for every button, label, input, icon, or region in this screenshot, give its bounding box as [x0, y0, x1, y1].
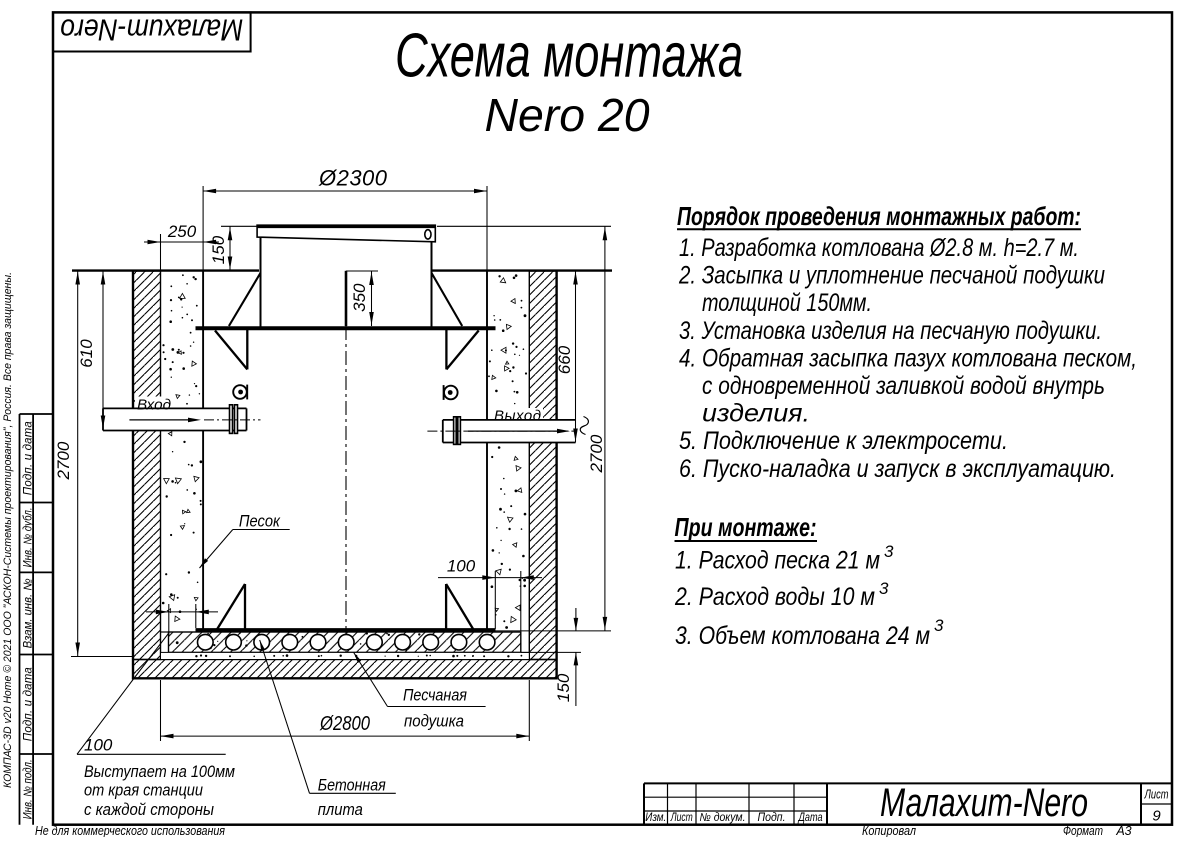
svg-text:1. Расход песка 21 м: 1. Расход песка 21 м [675, 546, 880, 574]
svg-text:Лист: Лист [1144, 788, 1169, 802]
svg-text:Изм.: Изм. [645, 812, 666, 824]
svg-text:Песок: Песок [239, 512, 281, 531]
svg-text:2700: 2700 [587, 434, 606, 473]
svg-text:подушка: подушка [404, 712, 464, 731]
svg-text:4. Обратная засыпка пазух котл: 4. Обратная засыпка пазух котлована песк… [679, 344, 1137, 372]
svg-text:350: 350 [350, 283, 369, 312]
svg-text:с одновременной заливкой водой: с одновременной заливкой водой внутрь [702, 372, 1105, 400]
svg-text:с каждой стороны: с каждой стороны [84, 800, 214, 819]
svg-text:Ø2800: Ø2800 [319, 713, 370, 735]
svg-text:Выход: Выход [494, 407, 541, 424]
svg-text:Малахит-Nero: Малахит-Nero [880, 781, 1088, 825]
svg-text:150: 150 [554, 673, 573, 702]
svg-text:толщиной 150мм.: толщиной 150мм. [702, 289, 872, 317]
svg-text:от края станции: от края станции [84, 780, 203, 799]
svg-text:№ докум.: № докум. [700, 812, 746, 824]
svg-text:Бетонная: Бетонная [318, 775, 386, 794]
svg-text:Дата: Дата [797, 812, 823, 824]
svg-text:Подп.: Подп. [758, 812, 786, 824]
svg-text:Схема монтажа: Схема монтажа [395, 22, 743, 91]
svg-text:100: 100 [447, 557, 476, 576]
svg-text:Взам. инв. №: Взам. инв. № [23, 578, 35, 649]
svg-text:6. Пуско-наладка и запуск в эк: 6. Пуско-наладка и запуск в эксплуатацию… [679, 455, 1116, 483]
svg-text:Подп. и дата: Подп. и дата [23, 421, 35, 495]
svg-text:660: 660 [555, 345, 574, 374]
svg-text:2700: 2700 [54, 441, 73, 480]
svg-text:5. Подключение к электросети.: 5. Подключение к электросети. [679, 427, 1008, 455]
svg-text:КОМПАС-3D v20 Home © 2021 ООО: КОМПАС-3D v20 Home © 2021 ООО "АСКОН-Сис… [2, 272, 14, 788]
svg-text:Малахит-Nero: Малахит-Nero [60, 13, 243, 48]
svg-text:При монтаже:: При монтаже: [675, 512, 817, 542]
svg-text:1. Разработка котлована Ø2.8 м: 1. Разработка котлована Ø2.8 м. h=2.7 м. [679, 234, 1079, 262]
svg-text:3: 3 [884, 542, 894, 561]
svg-text:610: 610 [77, 339, 96, 368]
svg-text:Не для коммерческого использов: Не для коммерческого использования [35, 824, 225, 837]
svg-text:3. Установка изделия на песчан: 3. Установка изделия на песчаную подушки… [679, 317, 1102, 345]
svg-text:Формат: Формат [1063, 824, 1103, 837]
svg-text:Копировал: Копировал [862, 824, 916, 837]
svg-text:3: 3 [934, 616, 944, 635]
svg-text:изделия.: изделия. [702, 400, 810, 428]
svg-text:250: 250 [167, 222, 197, 241]
svg-text:Выступает на 100мм: Выступает на 100мм [84, 762, 235, 781]
svg-text:2. Расход воды 10 м: 2. Расход воды 10 м [674, 583, 875, 611]
svg-text:3. Объем котлована 24 м: 3. Объем котлована 24 м [675, 622, 930, 650]
svg-text:Песчаная: Песчаная [403, 686, 467, 705]
svg-text:А3: А3 [1115, 824, 1131, 837]
svg-text:150: 150 [209, 235, 228, 264]
svg-text:Инв. № подл.: Инв. № подл. [23, 759, 35, 819]
svg-text:Nero 20: Nero 20 [485, 89, 650, 141]
svg-text:плита: плита [318, 800, 363, 819]
svg-text:Ø2300: Ø2300 [318, 166, 388, 191]
svg-text:Порядок проведения монтажных р: Порядок проведения монтажных работ: [677, 201, 1081, 231]
svg-text:2. Засыпка и уплотнение песчан: 2. Засыпка и уплотнение песчаной подушки [678, 262, 1105, 290]
svg-text:9: 9 [1152, 808, 1161, 825]
svg-text:3: 3 [879, 579, 889, 598]
svg-text:Инв. № дубл.: Инв. № дубл. [23, 507, 35, 567]
svg-text:Подп. и дата: Подп. и дата [23, 667, 35, 741]
svg-text:Вход: Вход [137, 396, 171, 413]
svg-text:Лист: Лист [670, 812, 693, 824]
